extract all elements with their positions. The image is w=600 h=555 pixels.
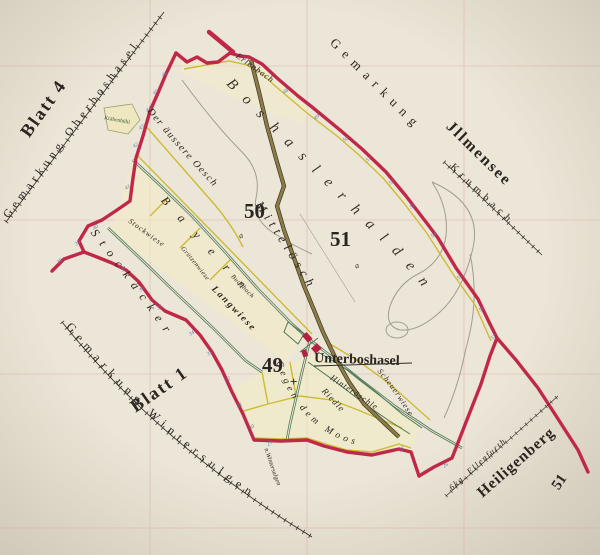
- section-number-49: 49: [262, 353, 283, 377]
- section-number-50: 50: [244, 199, 265, 223]
- settlement-name-unterboshasel: Unterboshasel: [314, 351, 400, 369]
- cadastral-map-canvas: 4645444342414039383736353433323130294849…: [0, 0, 600, 555]
- map-photo: 4645444342414039383736353433323130294849…: [0, 0, 600, 555]
- section-number-51: 51: [330, 227, 351, 251]
- section-mark-49: +: [290, 374, 297, 389]
